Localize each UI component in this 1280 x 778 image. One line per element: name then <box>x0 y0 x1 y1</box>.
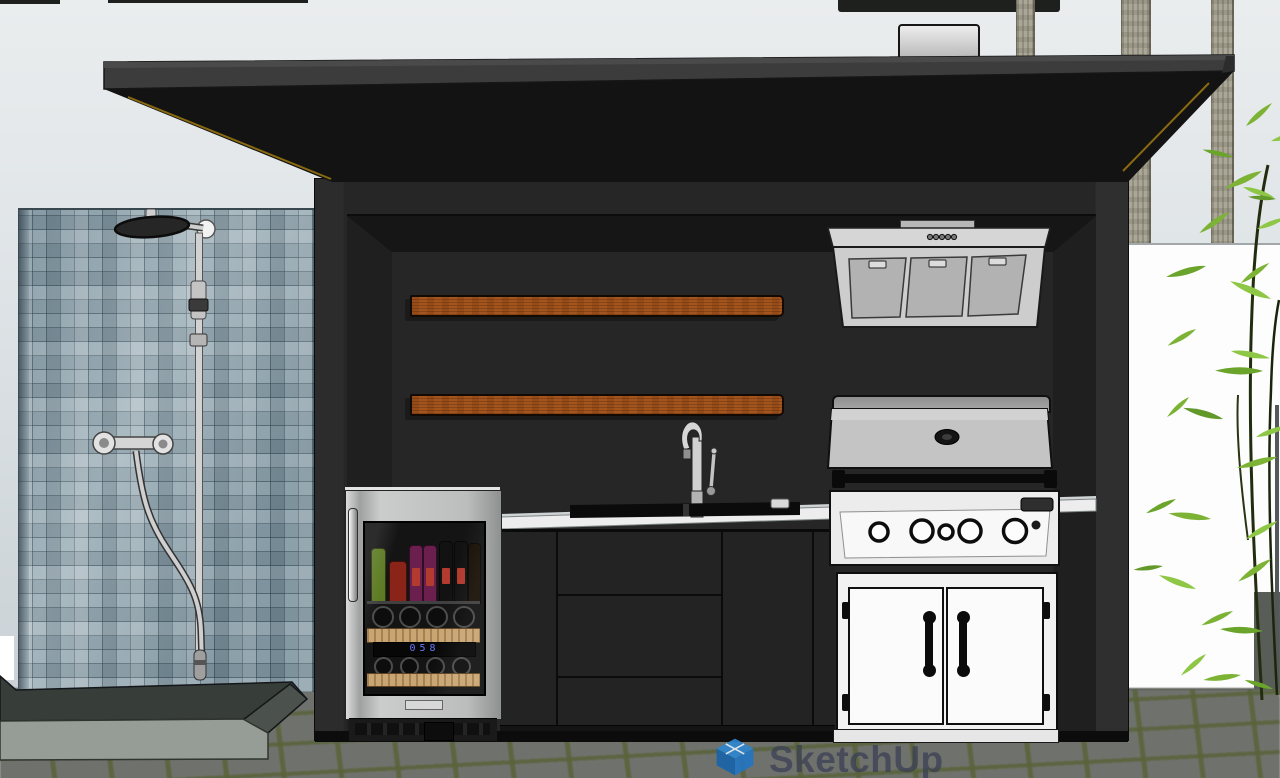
holder-clamp <box>189 299 208 311</box>
beverage-fridge: 058 <box>345 487 500 742</box>
vent-box <box>424 722 454 741</box>
treetop-strip <box>108 0 308 3</box>
bamboo-leaf <box>1244 102 1275 128</box>
sketchup-logo <box>712 735 758 778</box>
valve-knob-center <box>159 440 168 449</box>
door-handle <box>959 619 967 669</box>
bamboo-leaf <box>1183 404 1224 424</box>
filter-handle-tab <box>989 258 1006 265</box>
hand-shower-band <box>194 660 206 665</box>
bamboo-plant <box>1095 95 1280 720</box>
bamboo-leaf <box>1255 424 1280 439</box>
floating-shelf <box>410 295 784 317</box>
sketchup-wordmark: SketchUp <box>769 739 944 778</box>
drawer-line <box>557 676 722 678</box>
bamboo-leaf <box>1244 520 1279 541</box>
bamboo-leaf <box>1133 565 1163 572</box>
treetop-strip <box>0 0 60 4</box>
bamboo-stem <box>1269 300 1279 695</box>
roof-canopy <box>90 40 1250 190</box>
bamboo-leaf <box>1203 673 1241 682</box>
shower-fixture-set <box>60 195 320 695</box>
rain-shower-head <box>114 214 189 239</box>
door-hinge <box>842 694 849 711</box>
bamboo-leaf <box>1166 328 1198 348</box>
fridge-vent-grille <box>349 718 497 741</box>
bamboo-leaf <box>1197 211 1231 235</box>
valve-knob-center <box>99 438 109 448</box>
faucet-lever-joint <box>707 487 716 496</box>
bamboo-leaf <box>1215 365 1263 376</box>
glass-reflection <box>365 523 484 694</box>
base-cabinets <box>500 529 835 738</box>
grill-thermometer-face <box>942 434 952 440</box>
hood-button <box>939 234 944 239</box>
grill-knob <box>939 525 953 539</box>
sketchup-viewport[interactable]: 058 <box>0 0 1280 778</box>
cabinet-seam <box>721 532 723 725</box>
hood-button <box>945 234 950 239</box>
faucet-lever-tip <box>711 448 717 454</box>
hood-button <box>951 234 956 239</box>
grill-display <box>1021 498 1053 511</box>
bamboo-leaf <box>1158 571 1197 593</box>
fridge-brand-plate <box>405 700 443 710</box>
door-hinge <box>1043 602 1050 619</box>
bamboo-leaf <box>1244 677 1273 692</box>
fridge-glass-door: 058 <box>363 521 486 696</box>
door-hinge <box>842 602 849 619</box>
hood-button <box>927 234 932 239</box>
bamboo-leaf <box>1165 264 1207 279</box>
grill-knob <box>870 523 888 541</box>
sketchup-watermark: SketchUp <box>705 733 985 778</box>
floating-shelf <box>410 394 784 416</box>
door-handle <box>925 619 933 669</box>
soap-dispenser <box>771 499 789 508</box>
platform-concrete-face <box>0 719 268 760</box>
cabinet-seam <box>812 532 814 725</box>
shower-hose-outline <box>136 451 202 664</box>
bamboo-leaf <box>1168 509 1211 524</box>
access-doors <box>836 572 1058 736</box>
vent-slots <box>355 723 490 735</box>
gas-grill <box>818 388 1068 570</box>
grill-ignition-button <box>1032 521 1041 530</box>
faucet-spout-nozzle <box>683 449 691 459</box>
bamboo-leaf <box>1229 277 1272 303</box>
filter-handle-tab <box>869 261 886 268</box>
tile-wall-edge <box>18 210 29 692</box>
grill-knob <box>1004 520 1027 543</box>
bamboo-leaf <box>1200 609 1234 627</box>
fridge-handle <box>348 508 358 602</box>
cabinet-seam <box>556 532 558 725</box>
door-handle <box>957 664 970 677</box>
bamboo-leaf <box>1145 498 1178 515</box>
bamboo-leaf <box>1179 653 1208 677</box>
faucet-riser <box>692 437 702 491</box>
bamboo-leaf <box>1165 396 1191 418</box>
bamboo-leaf <box>1223 169 1264 190</box>
roof-soffit <box>104 71 1234 182</box>
bamboo-leaf <box>1202 146 1233 160</box>
filter-handle-tab <box>929 260 946 267</box>
hood-button <box>933 234 938 239</box>
pipe-clamp <box>190 334 207 346</box>
door-handle <box>923 664 936 677</box>
sink-divider <box>683 504 689 516</box>
bamboo-leaf <box>1270 129 1280 143</box>
sink-and-faucet <box>560 415 820 525</box>
grill-hood-highlight <box>831 409 1048 420</box>
grill-handle-bracket <box>1044 470 1057 488</box>
drawer-line <box>557 594 722 596</box>
range-hood <box>818 224 1063 336</box>
grill-knob <box>911 520 933 542</box>
door-hinge <box>1043 694 1050 711</box>
grill-knob <box>959 520 981 542</box>
bamboo-leaf <box>1236 455 1278 470</box>
grill-handle <box>843 474 1045 483</box>
